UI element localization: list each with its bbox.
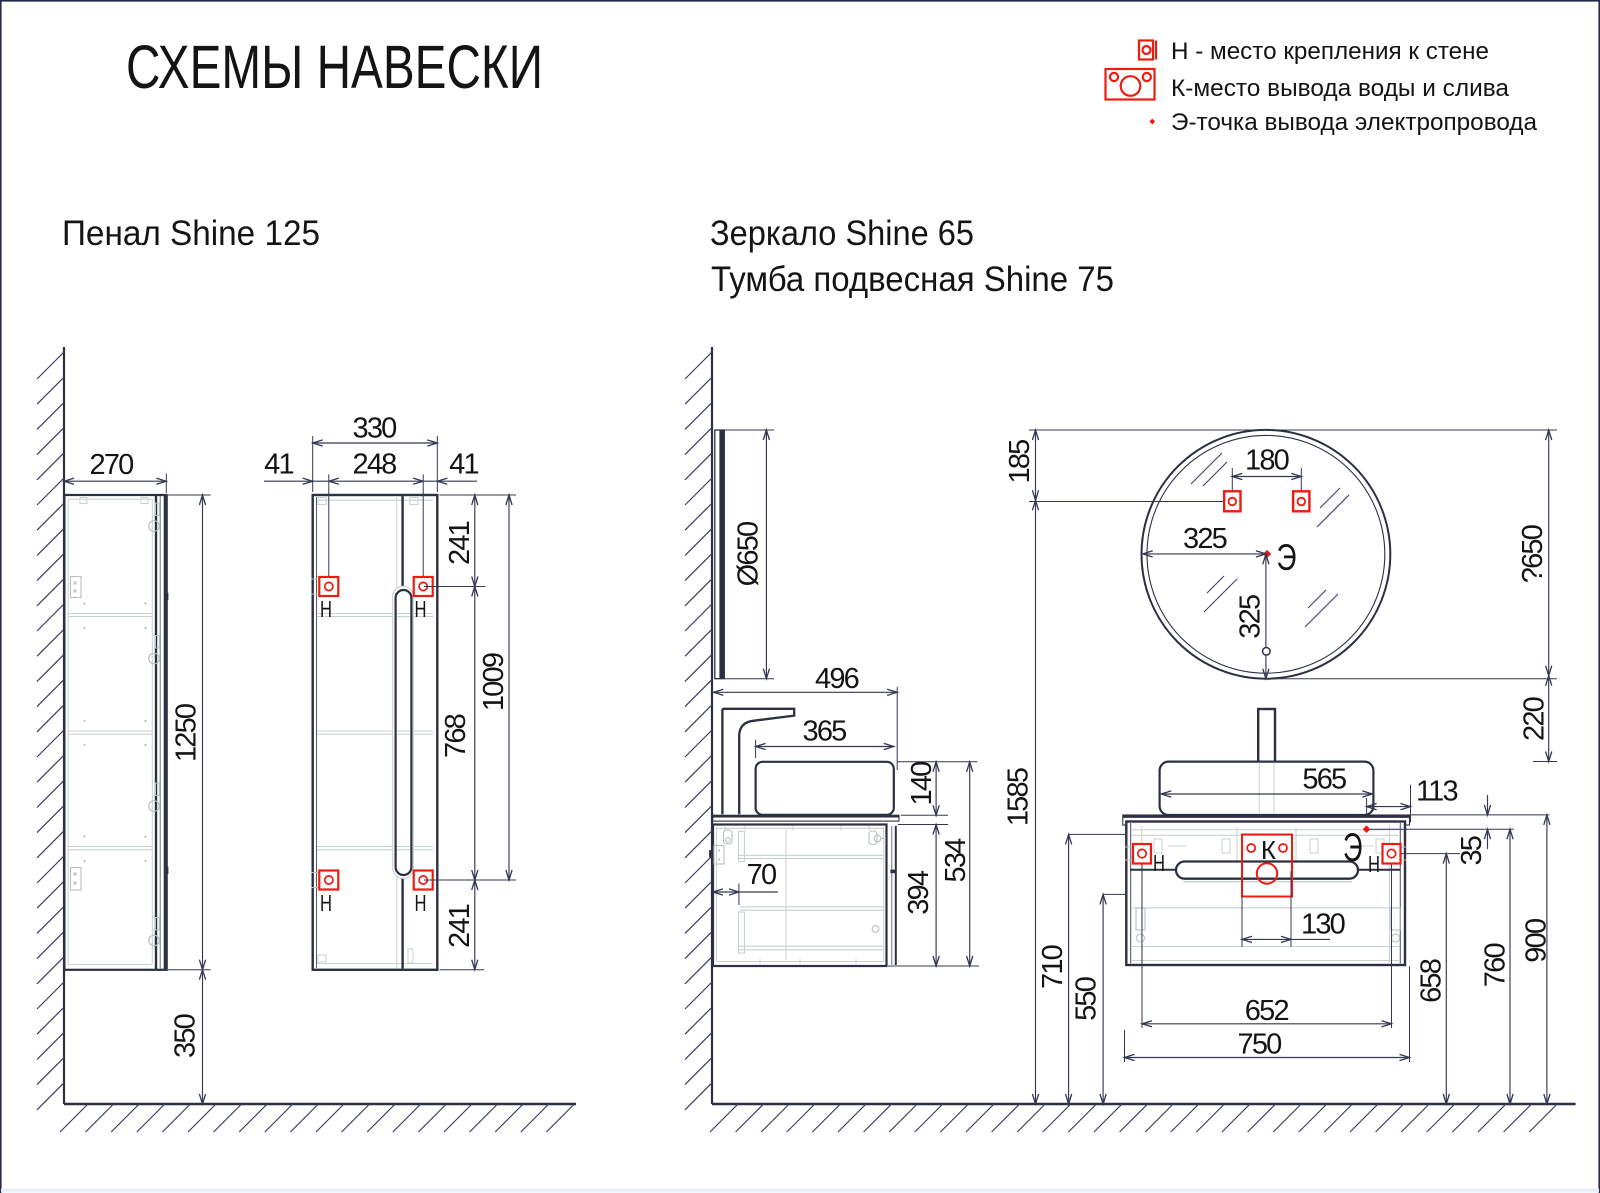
svg-text:113: 113	[1416, 776, 1458, 808]
svg-text:Э-точка вывода электропровода: Э-точка вывода электропровода	[1171, 109, 1538, 136]
svg-text:41: 41	[449, 449, 478, 481]
svg-text:Н: Н	[415, 890, 427, 916]
svg-text:Н: Н	[320, 596, 332, 622]
svg-text:220: 220	[1519, 697, 1551, 741]
svg-text:Зеркало Shine 65: Зеркало Shine 65	[710, 214, 974, 253]
svg-text:185: 185	[1004, 440, 1036, 484]
svg-text:180: 180	[1245, 445, 1289, 477]
svg-text:Н: Н	[1153, 850, 1165, 876]
svg-text:К-место вывода воды и слива: К-место вывода воды и слива	[1171, 75, 1510, 102]
svg-text:325: 325	[1183, 523, 1227, 555]
svg-text:Ø650: Ø650	[733, 522, 765, 586]
svg-text:130: 130	[1301, 909, 1345, 941]
svg-text:496: 496	[815, 663, 859, 695]
svg-text:534: 534	[940, 838, 972, 883]
svg-text:652: 652	[1245, 995, 1289, 1027]
svg-text:248: 248	[353, 449, 397, 481]
svg-text:1250: 1250	[171, 704, 203, 762]
svg-text:550: 550	[1071, 977, 1103, 1021]
svg-text:35: 35	[1456, 836, 1488, 865]
svg-text:Пенал Shine 125: Пенал Shine 125	[62, 214, 320, 253]
svg-text:К: К	[1261, 835, 1276, 865]
svg-text:Тумба подвесная Shine 75: Тумба подвесная Shine 75	[711, 260, 1114, 299]
svg-text:750: 750	[1238, 1029, 1282, 1061]
svg-text:Н - место крепления к стене: Н - место крепления к стене	[1171, 38, 1489, 65]
svg-text:768: 768	[440, 714, 472, 758]
svg-text:710: 710	[1037, 945, 1069, 989]
svg-text:СХЕМЫ НАВЕСКИ: СХЕМЫ НАВЕСКИ	[126, 33, 543, 101]
svg-text:1585: 1585	[1003, 768, 1035, 826]
svg-text:Н: Н	[1368, 851, 1380, 877]
svg-text:140: 140	[906, 762, 938, 806]
svg-text:241: 241	[444, 521, 476, 565]
svg-text:41: 41	[264, 449, 293, 481]
svg-text:?650: ?650	[1517, 525, 1549, 583]
svg-text:330: 330	[353, 413, 397, 445]
svg-text:350: 350	[170, 1014, 202, 1058]
svg-text:Э: Э	[1343, 826, 1363, 870]
svg-text:658: 658	[1416, 959, 1448, 1003]
svg-text:325: 325	[1235, 595, 1267, 639]
svg-text:Н: Н	[320, 890, 332, 916]
svg-text:Н: Н	[415, 596, 427, 622]
svg-text:365: 365	[803, 716, 847, 748]
svg-text:1009: 1009	[478, 653, 510, 711]
svg-text:241: 241	[444, 904, 476, 948]
svg-text:900: 900	[1521, 919, 1553, 963]
svg-text:70: 70	[747, 859, 776, 891]
svg-text:Э: Э	[1277, 537, 1297, 578]
svg-text:270: 270	[90, 449, 134, 481]
svg-text:760: 760	[1480, 944, 1512, 988]
svg-text:394: 394	[903, 870, 935, 915]
svg-text:565: 565	[1302, 764, 1346, 796]
